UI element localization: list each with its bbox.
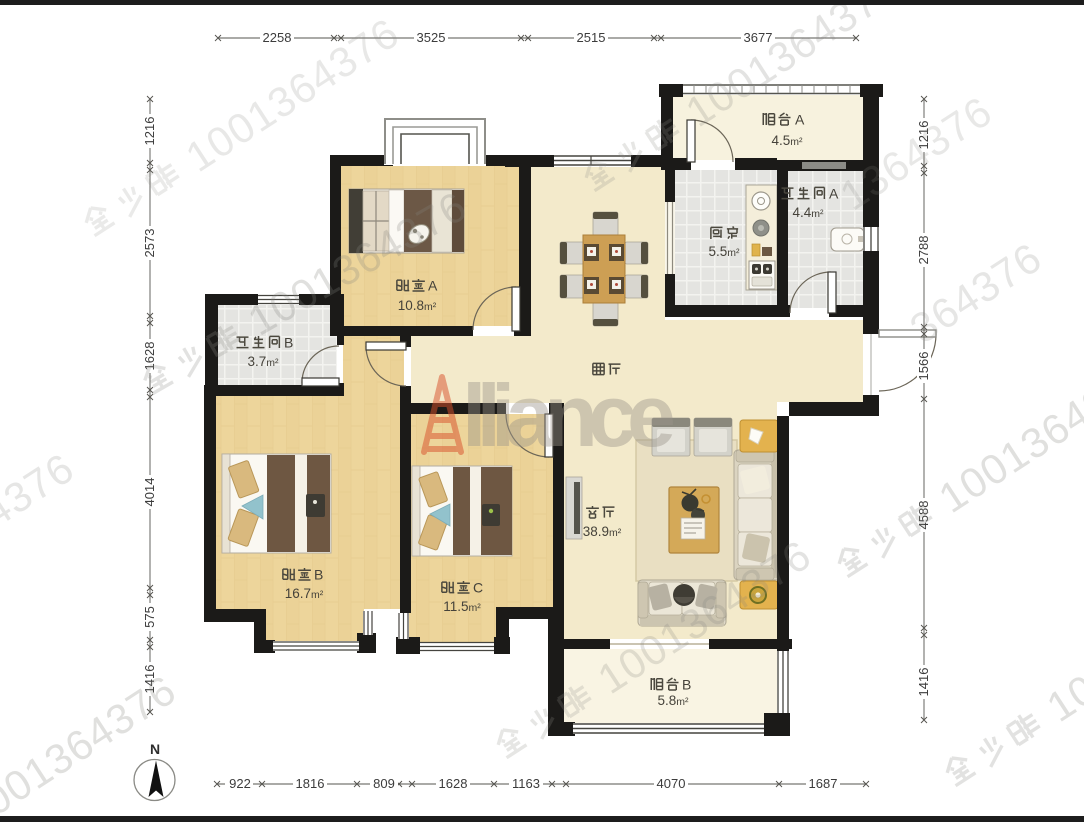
svg-text:4014: 4014 xyxy=(142,478,157,507)
svg-text:1163: 1163 xyxy=(512,776,540,791)
svg-text:2258: 2258 xyxy=(263,30,292,45)
svg-text:B: B xyxy=(682,677,691,693)
svg-text:575: 575 xyxy=(142,606,157,628)
svg-text:2515: 2515 xyxy=(577,30,606,45)
svg-text:4070: 4070 xyxy=(657,776,686,791)
svg-text:N: N xyxy=(150,741,160,757)
svg-text:10.8m²: 10.8m² xyxy=(398,298,437,313)
svg-text:1216: 1216 xyxy=(142,117,157,146)
svg-text:1566: 1566 xyxy=(916,352,931,381)
svg-text:922: 922 xyxy=(229,776,251,791)
svg-text:1416: 1416 xyxy=(916,668,931,697)
svg-text:2573: 2573 xyxy=(142,229,157,258)
svg-text:lliance: lliance xyxy=(462,366,673,465)
svg-text:C: C xyxy=(473,580,483,596)
svg-text:4.4m²: 4.4m² xyxy=(792,205,824,220)
svg-text:3525: 3525 xyxy=(417,30,446,45)
svg-text:16.7m²: 16.7m² xyxy=(285,586,324,601)
svg-text:3.7m²: 3.7m² xyxy=(247,354,279,369)
svg-text:809: 809 xyxy=(373,776,395,791)
svg-text:5.8m²: 5.8m² xyxy=(657,693,689,708)
svg-text:1816: 1816 xyxy=(296,776,325,791)
svg-text:A: A xyxy=(428,278,438,294)
svg-text:2788: 2788 xyxy=(916,236,931,265)
svg-text:A: A xyxy=(795,112,805,128)
svg-text:38.9m²: 38.9m² xyxy=(583,524,622,539)
svg-text:4.5m²: 4.5m² xyxy=(771,133,803,148)
svg-text:1687: 1687 xyxy=(809,776,838,791)
svg-text:B: B xyxy=(284,335,293,351)
svg-text:B: B xyxy=(314,567,323,583)
svg-text:11.5m²: 11.5m² xyxy=(443,599,481,614)
svg-text:1628: 1628 xyxy=(439,776,468,791)
svg-text:5.5m²: 5.5m² xyxy=(708,244,740,259)
